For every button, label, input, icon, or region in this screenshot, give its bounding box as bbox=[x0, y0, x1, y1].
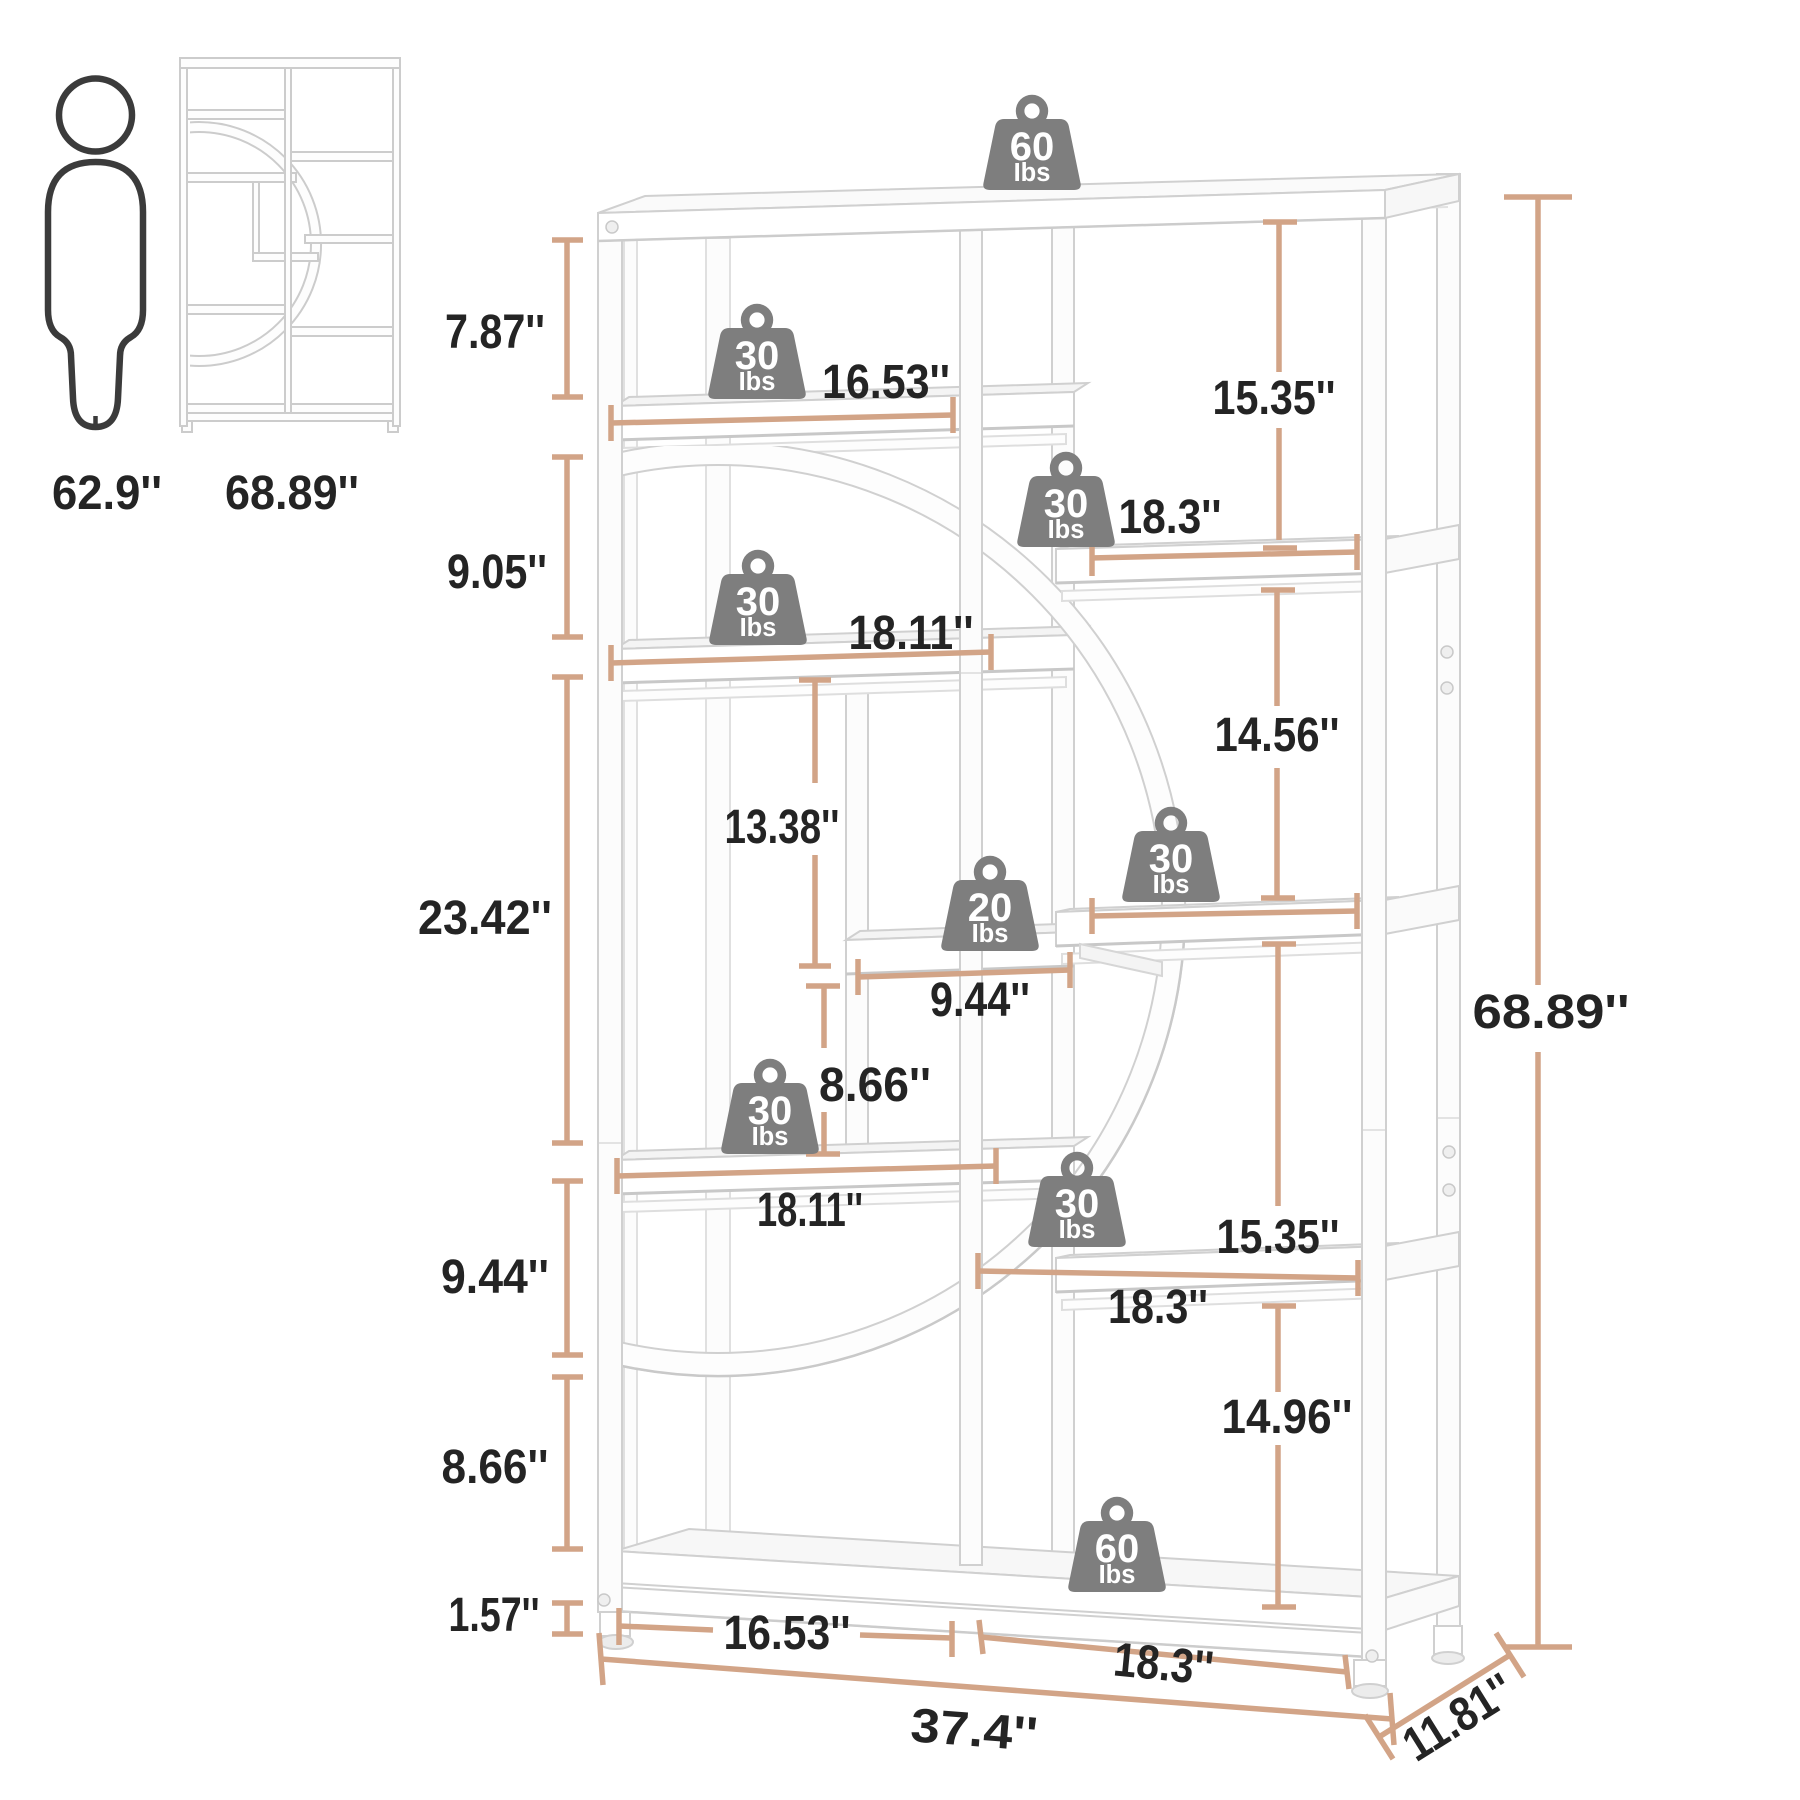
svg-text:Ibs: Ibs bbox=[1153, 871, 1190, 899]
svg-text:14.56'': 14.56'' bbox=[1215, 709, 1340, 762]
svg-text:Ibs: Ibs bbox=[1014, 159, 1051, 187]
svg-text:62.9'': 62.9'' bbox=[52, 467, 162, 520]
svg-text:7.87'': 7.87'' bbox=[445, 306, 545, 359]
svg-text:9.05'': 9.05'' bbox=[447, 546, 547, 599]
svg-text:1.57'': 1.57'' bbox=[449, 1589, 540, 1642]
svg-text:14.96'': 14.96'' bbox=[1222, 1391, 1353, 1444]
svg-text:23.42'': 23.42'' bbox=[418, 892, 552, 945]
svg-text:Ibs: Ibs bbox=[1048, 516, 1085, 544]
svg-text:15.35'': 15.35'' bbox=[1213, 372, 1336, 425]
svg-text:13.38'': 13.38'' bbox=[725, 801, 840, 854]
svg-text:16.53'': 16.53'' bbox=[724, 1607, 851, 1660]
svg-text:16.53'': 16.53'' bbox=[822, 356, 950, 409]
svg-text:68.89'': 68.89'' bbox=[1473, 986, 1630, 1039]
svg-text:18.3'': 18.3'' bbox=[1111, 1633, 1216, 1695]
svg-text:18.11'': 18.11'' bbox=[757, 1184, 863, 1237]
svg-text:9.44'': 9.44'' bbox=[930, 974, 1030, 1027]
svg-text:37.4'': 37.4'' bbox=[909, 1699, 1040, 1761]
svg-text:Ibs: Ibs bbox=[1059, 1216, 1096, 1244]
svg-text:8.66'': 8.66'' bbox=[819, 1059, 931, 1112]
svg-text:18.11'': 18.11'' bbox=[849, 607, 974, 660]
svg-text:Ibs: Ibs bbox=[1099, 1561, 1136, 1589]
svg-text:Ibs: Ibs bbox=[740, 614, 777, 642]
svg-text:8.66'': 8.66'' bbox=[442, 1441, 549, 1494]
svg-text:68.89'': 68.89'' bbox=[225, 467, 359, 520]
svg-text:18.3'': 18.3'' bbox=[1119, 491, 1222, 544]
svg-text:Ibs: Ibs bbox=[972, 920, 1009, 948]
svg-text:18.3'': 18.3'' bbox=[1108, 1281, 1208, 1334]
svg-text:9.44'': 9.44'' bbox=[441, 1251, 549, 1304]
svg-text:Ibs: Ibs bbox=[752, 1123, 789, 1151]
svg-text:Ibs: Ibs bbox=[739, 368, 776, 396]
svg-text:15.35'': 15.35'' bbox=[1217, 1211, 1340, 1264]
